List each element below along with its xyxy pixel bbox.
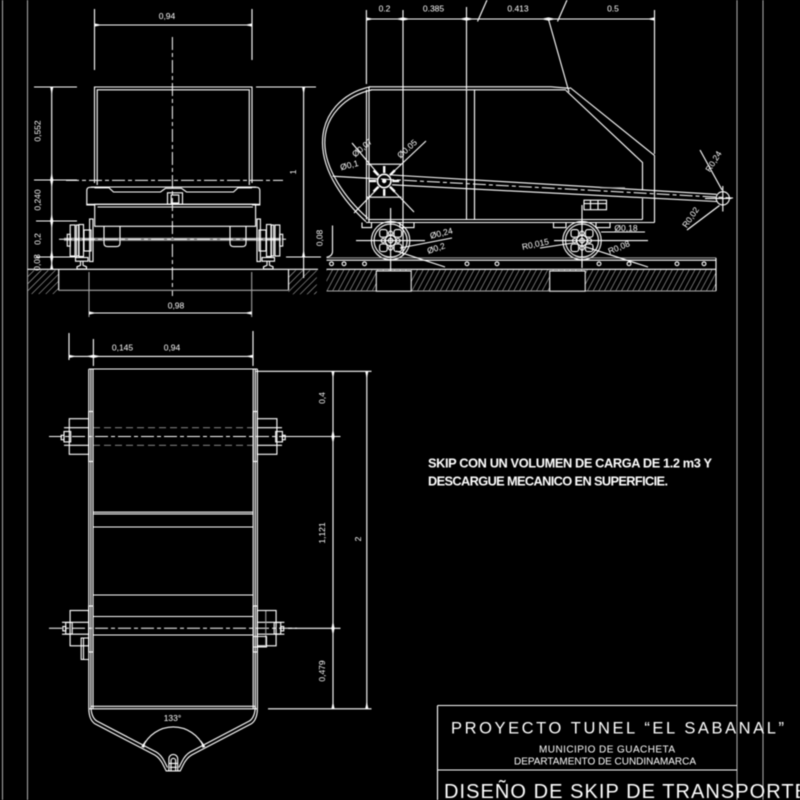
svg-text:0.5: 0.5 — [607, 4, 619, 14]
svg-text:0,08: 0,08 — [32, 254, 42, 271]
svg-text:133°: 133° — [164, 713, 182, 723]
svg-text:0.2: 0.2 — [379, 4, 391, 14]
svg-text:1: 1 — [288, 169, 298, 174]
svg-text:0,145: 0,145 — [112, 343, 134, 353]
svg-text:0,94: 0,94 — [164, 343, 181, 353]
svg-text:0,94: 0,94 — [159, 11, 176, 21]
svg-text:2: 2 — [353, 536, 363, 541]
svg-text:DISEÑO DE SKIP DE TRANSPOR: DISEÑO DE SKIP DE TRANSPORTE — [444, 779, 800, 800]
svg-text:0,479: 0,479 — [317, 660, 327, 682]
svg-text:0,4: 0,4 — [317, 392, 327, 404]
svg-text:0,98: 0,98 — [168, 301, 185, 311]
svg-text:0.413: 0.413 — [507, 4, 529, 14]
svg-text:0,240: 0,240 — [33, 189, 43, 211]
svg-text:0,2: 0,2 — [33, 233, 43, 245]
svg-text:DEPARTAMENTO DE CUNDINAMARCA: DEPARTAMENTO DE CUNDINAMARCA — [514, 757, 696, 768]
svg-text:0.385: 0.385 — [423, 4, 445, 14]
svg-text:Ø0,18: Ø0,18 — [614, 223, 637, 233]
svg-text:0,552: 0,552 — [33, 120, 43, 142]
svg-text:PROYECTO TUNEL “EL SABANAL”: PROYECTO TUNEL “EL SABANAL” — [451, 720, 784, 738]
svg-text:1,121: 1,121 — [317, 522, 327, 544]
svg-text:DESCARGUE MECANICO EN SUPERFIC: DESCARGUE MECANICO EN SUPERFICIE. — [428, 474, 668, 489]
svg-text:SKIP CON UN VOLUMEN DE CARGA D: SKIP CON UN VOLUMEN DE CARGA DE 1.2 m3 Y — [428, 456, 712, 471]
svg-text:MUNICIPIO DE GUACHETA: MUNICIPIO DE GUACHETA — [539, 745, 675, 756]
svg-text:0,08: 0,08 — [315, 229, 325, 246]
